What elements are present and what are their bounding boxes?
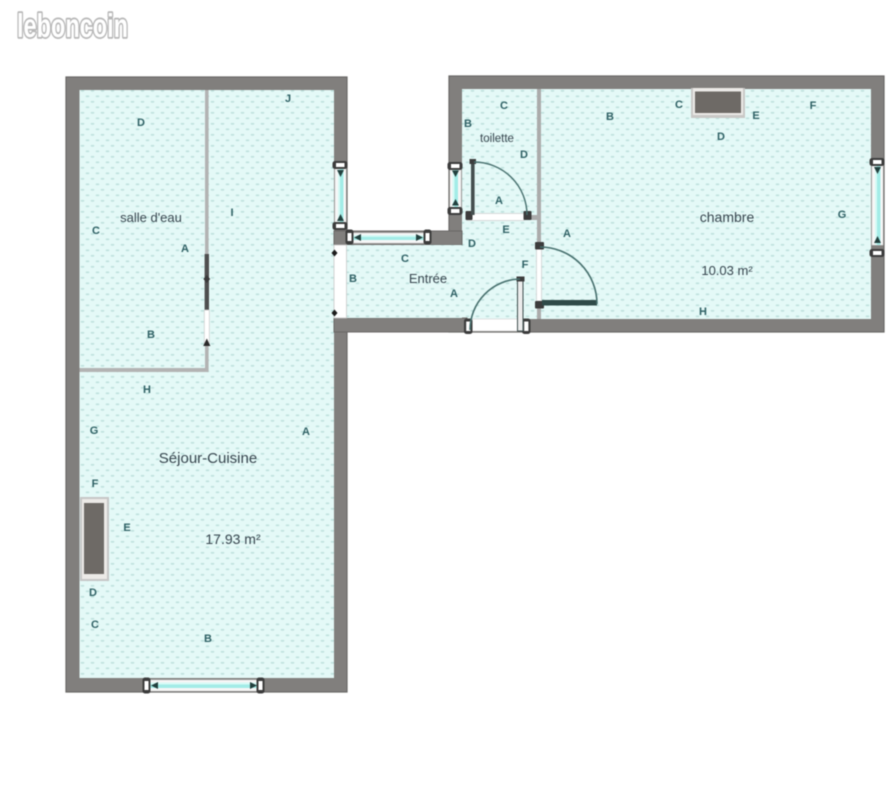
svg-text:D: D bbox=[520, 149, 528, 161]
svg-text:H: H bbox=[699, 306, 707, 318]
svg-text:17.93 m²: 17.93 m² bbox=[205, 531, 261, 547]
svg-text:H: H bbox=[143, 384, 151, 396]
svg-text:Entrée: Entrée bbox=[409, 271, 447, 286]
svg-text:leboncoin: leboncoin bbox=[17, 7, 128, 44]
svg-text:E: E bbox=[502, 224, 509, 236]
svg-text:A: A bbox=[302, 426, 310, 438]
svg-text:A: A bbox=[563, 228, 571, 240]
svg-text:D: D bbox=[137, 117, 145, 129]
svg-text:J: J bbox=[285, 93, 291, 105]
svg-text:10.03 m²: 10.03 m² bbox=[701, 263, 753, 278]
svg-text:C: C bbox=[675, 99, 683, 111]
svg-text:D: D bbox=[89, 587, 97, 599]
svg-text:B: B bbox=[464, 118, 472, 130]
svg-text:G: G bbox=[90, 425, 99, 437]
svg-text:A: A bbox=[181, 243, 189, 255]
svg-text:B: B bbox=[147, 329, 155, 341]
svg-text:toilette: toilette bbox=[480, 133, 514, 145]
svg-text:B: B bbox=[349, 273, 357, 285]
svg-text:A: A bbox=[495, 195, 503, 207]
svg-text:G: G bbox=[838, 209, 847, 221]
svg-text:F: F bbox=[522, 259, 529, 271]
svg-text:D: D bbox=[468, 238, 476, 250]
svg-text:Séjour-Cuisine: Séjour-Cuisine bbox=[159, 450, 257, 467]
svg-text:D: D bbox=[717, 131, 725, 143]
svg-text:C: C bbox=[401, 253, 409, 265]
svg-text:I: I bbox=[230, 207, 233, 219]
svg-text:salle d'eau: salle d'eau bbox=[120, 210, 182, 225]
svg-text:B: B bbox=[606, 111, 614, 123]
svg-text:E: E bbox=[123, 522, 130, 534]
svg-text:F: F bbox=[92, 478, 99, 490]
svg-text:C: C bbox=[500, 100, 508, 112]
svg-text:F: F bbox=[810, 100, 817, 112]
svg-text:C: C bbox=[91, 619, 99, 631]
svg-text:chambre: chambre bbox=[700, 209, 755, 225]
svg-text:C: C bbox=[92, 225, 100, 237]
svg-text:E: E bbox=[752, 110, 759, 122]
svg-text:A: A bbox=[450, 288, 458, 300]
svg-text:B: B bbox=[204, 633, 212, 645]
